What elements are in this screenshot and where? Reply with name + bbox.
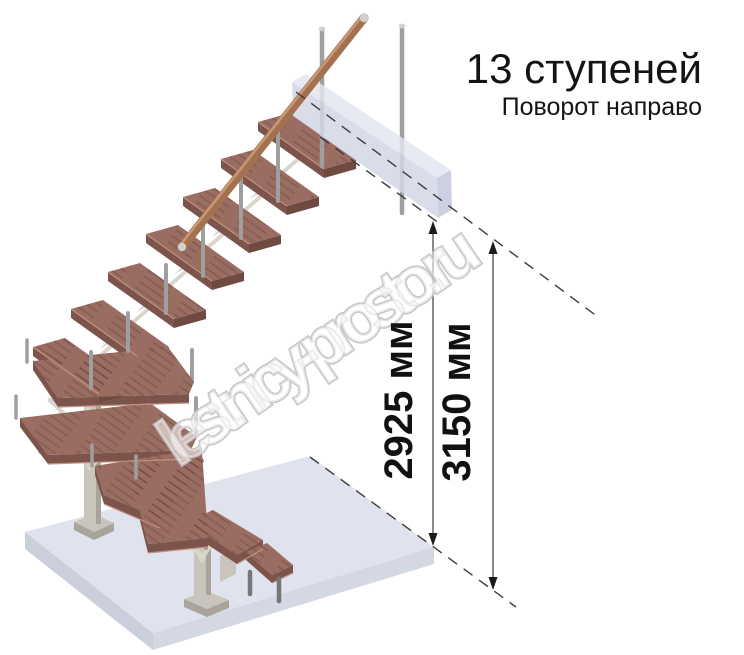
turn-direction-subtitle: Поворот направо xyxy=(502,93,702,121)
handrail-cap xyxy=(360,14,368,22)
landing-end-face xyxy=(437,170,452,218)
handrail-cap xyxy=(178,243,186,251)
dimension-label-2925: 2925 мм xyxy=(377,320,421,479)
steps-count-title: 13 ступеней xyxy=(466,45,702,92)
dimension-label-3150: 3150 мм xyxy=(435,322,479,481)
staircase-illustration: lestnicy-prosto.ru 2925 мм 3150 мм 13 ст… xyxy=(0,0,744,655)
staircase-diagram: lestnicy-prosto.ru 2925 мм 3150 мм 13 ст… xyxy=(0,0,744,655)
